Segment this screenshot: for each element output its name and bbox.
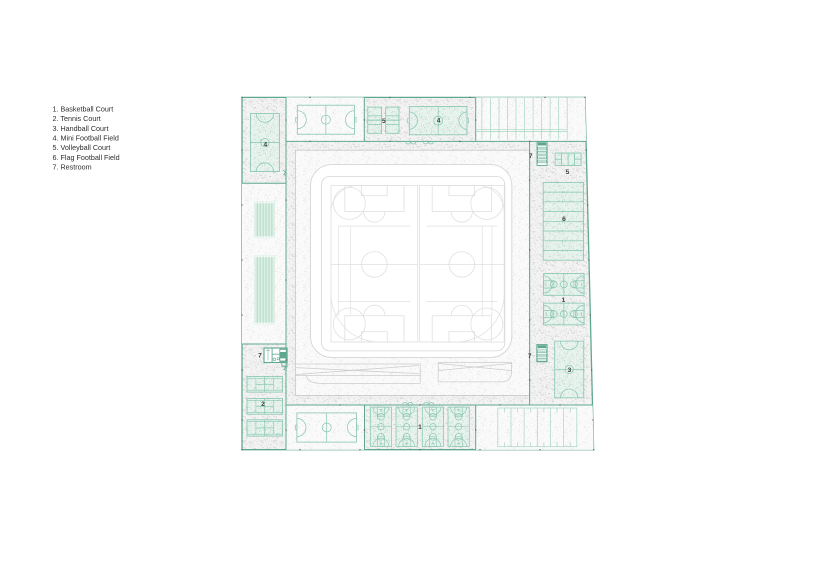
svg-text:7. Restroom: 7. Restroom — [53, 162, 92, 171]
svg-text:2: 2 — [261, 401, 265, 408]
svg-text:1. Basketball Court: 1. Basketball Court — [53, 105, 114, 114]
svg-text:7: 7 — [529, 153, 533, 160]
svg-text:7: 7 — [528, 353, 532, 360]
svg-text:3. Handball Court: 3. Handball Court — [53, 124, 109, 133]
svg-text:4: 4 — [263, 142, 267, 149]
svg-text:5: 5 — [382, 118, 386, 125]
svg-text:1: 1 — [418, 424, 422, 431]
svg-text:4. Mini Football Field: 4. Mini Football Field — [53, 133, 119, 142]
svg-text:6. Flag Football Field: 6. Flag Football Field — [53, 153, 120, 162]
svg-text:7: 7 — [258, 353, 262, 360]
svg-text:1: 1 — [562, 297, 566, 304]
svg-text:3: 3 — [568, 367, 572, 374]
svg-text:6: 6 — [562, 216, 566, 223]
svg-text:4: 4 — [437, 118, 441, 125]
svg-text:5. Volleyball Court: 5. Volleyball Court — [53, 143, 111, 152]
svg-text:2. Tennis Court: 2. Tennis Court — [53, 114, 101, 123]
svg-text:5: 5 — [566, 169, 570, 176]
